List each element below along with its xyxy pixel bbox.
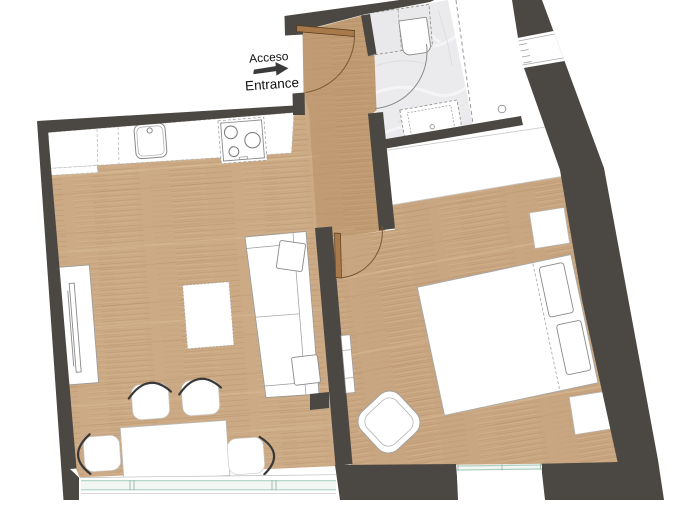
svg-text:Acceso: Acceso	[249, 49, 290, 66]
